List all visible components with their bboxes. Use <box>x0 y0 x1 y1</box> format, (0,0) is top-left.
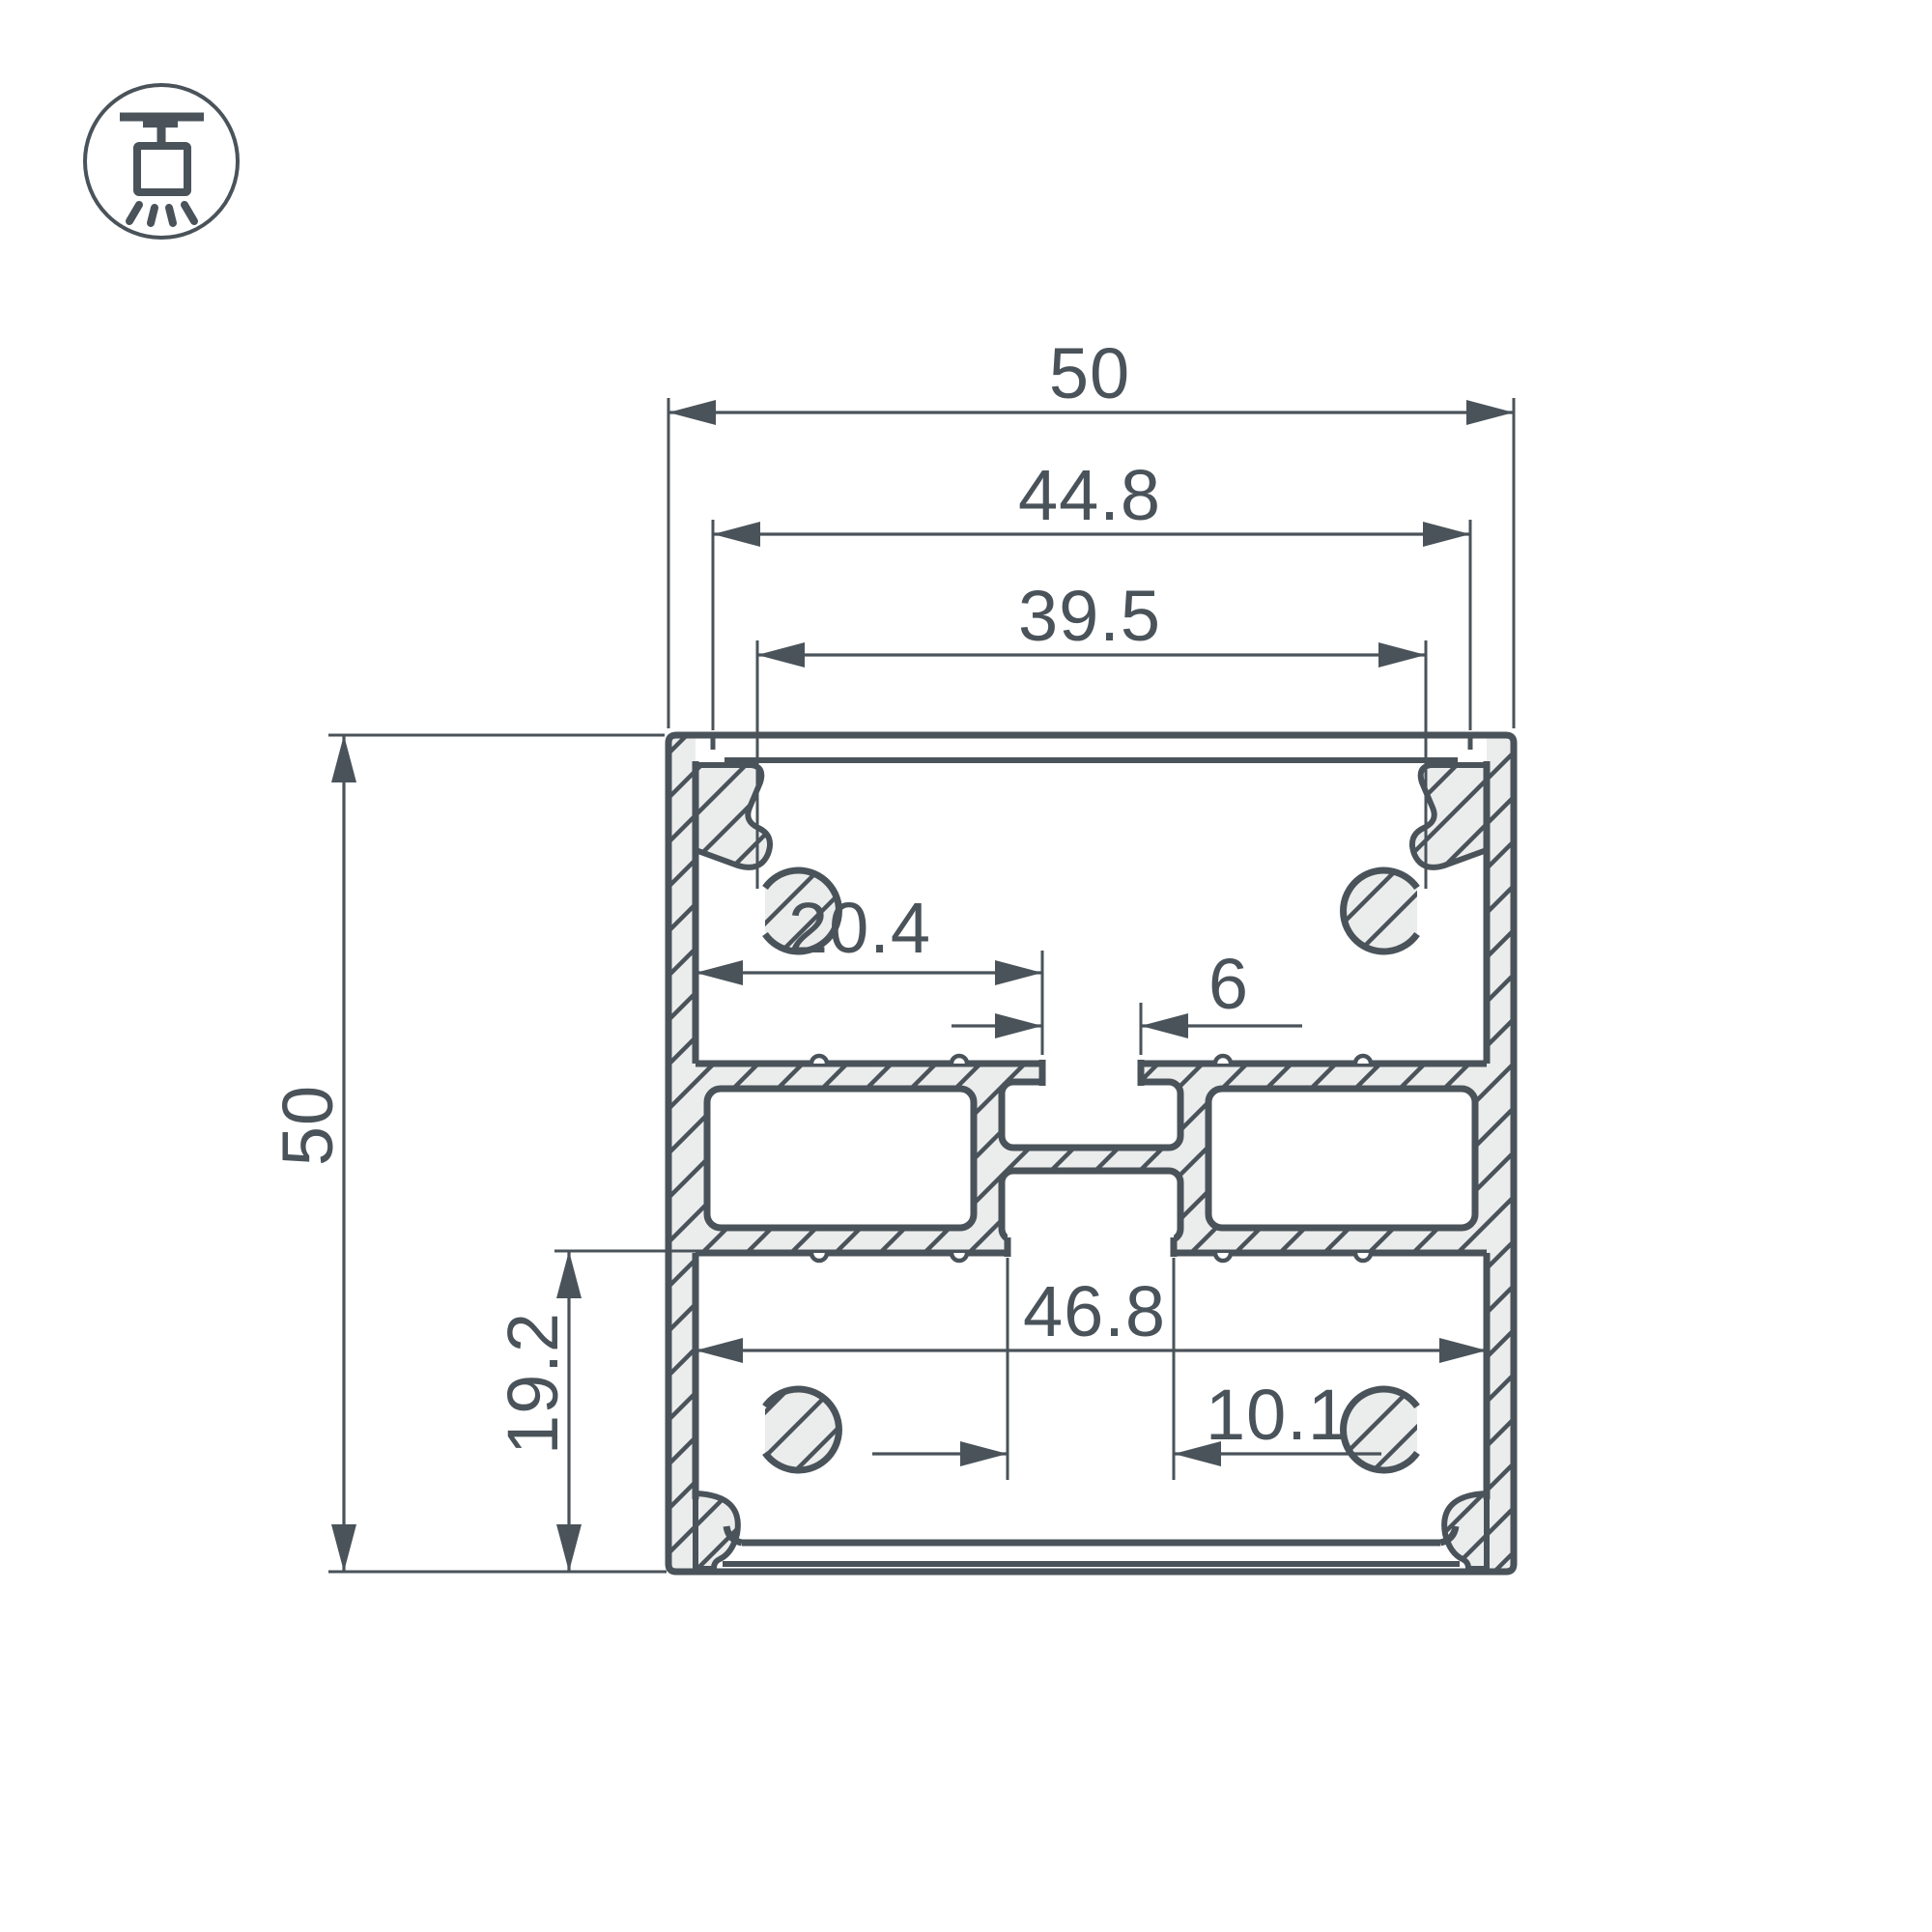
label-outer-height: 50 <box>268 1085 348 1166</box>
label-inner-width: 46.8 <box>1023 1271 1166 1351</box>
label-shelf-offset: 20.4 <box>788 888 931 968</box>
bottom-left-foot <box>696 1493 738 1569</box>
label-opening-width: 39.5 <box>1018 576 1161 656</box>
screw-boss-upper-right <box>1344 870 1417 952</box>
label-bottom-slot-width: 10.1 <box>1206 1375 1349 1455</box>
left-chamber <box>707 1089 974 1228</box>
center-top-slot-punch <box>1042 1057 1141 1088</box>
center-upper-cavity <box>1002 1082 1180 1148</box>
profile-cross-section: 50 44.8 39.5 20.4 6 46.8 10.1 50 19.2 <box>0 0 1932 1932</box>
label-top-slot-width: 6 <box>1208 944 1249 1024</box>
icon-light-rays <box>129 205 194 223</box>
drawing-canvas: 50 44.8 39.5 20.4 6 46.8 10.1 50 19.2 <box>0 0 1932 1932</box>
top-right-cover-clip <box>1412 765 1487 867</box>
icon-circle <box>85 85 238 238</box>
label-cover-width: 44.8 <box>1018 455 1161 535</box>
dimension-labels: 50 44.8 39.5 20.4 6 46.8 10.1 50 19.2 <box>268 333 1349 1455</box>
surface-ceiling-mount-icon <box>85 85 238 238</box>
label-lower-section-height: 19.2 <box>493 1312 573 1455</box>
center-bottom-slot-punch <box>1008 1235 1174 1260</box>
bottom-right-foot <box>1444 1493 1487 1569</box>
label-outer-width: 50 <box>1049 333 1130 413</box>
center-lower-cavity <box>1002 1171 1180 1240</box>
screw-boss-lower-left <box>765 1389 838 1470</box>
right-chamber <box>1208 1089 1475 1228</box>
icon-luminaire-box <box>137 146 187 192</box>
screw-boss-lower-right <box>1344 1389 1417 1470</box>
